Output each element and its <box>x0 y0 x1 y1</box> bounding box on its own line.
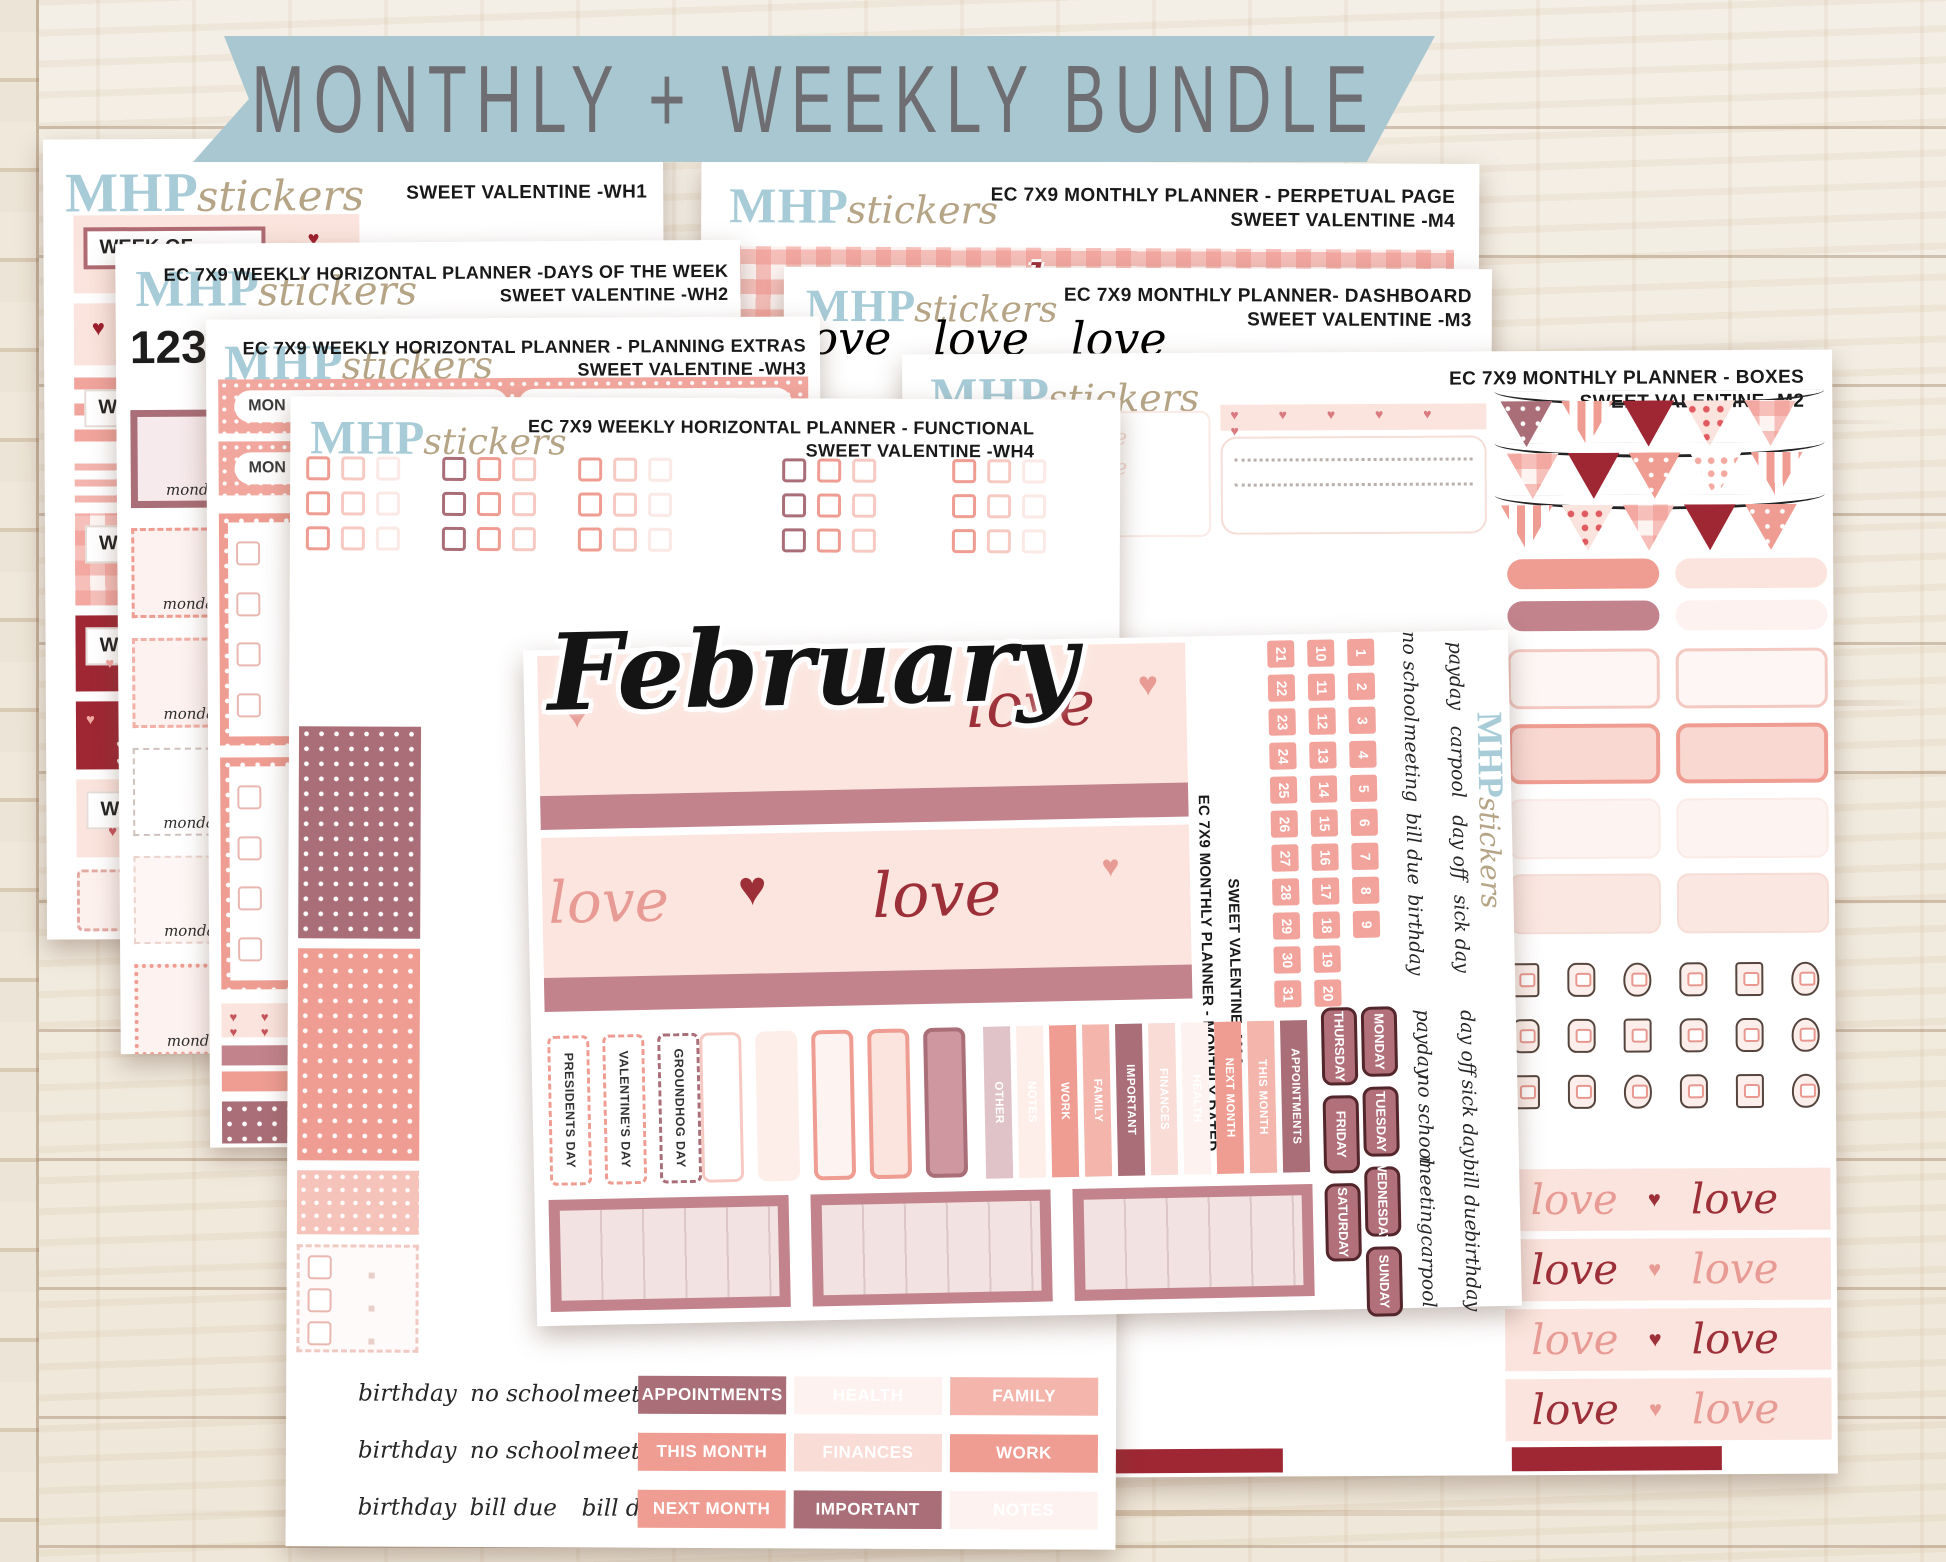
date-square: 15 <box>1311 809 1339 837</box>
note-box <box>1072 1184 1314 1301</box>
script-word-sticker: bill due <box>1450 1162 1491 1227</box>
sheet-code: SWEET VALENTINE -WH1 <box>406 180 647 205</box>
medicine-jar-icon <box>1562 1015 1602 1057</box>
gas-pump-icon <box>1673 958 1713 1000</box>
icon-sticker-grid <box>1505 958 1830 1128</box>
title-ribbon: MONTHLY + WEEKLY BUNDLE <box>193 36 1435 162</box>
quarter-box-row <box>1508 648 1828 710</box>
date-square: 29 <box>1273 912 1301 940</box>
checkbox <box>236 542 260 566</box>
note-box-row <box>549 1184 1315 1312</box>
day-pill: WEDNESDAY <box>1364 1166 1401 1237</box>
suitcase-icon <box>1674 1014 1714 1056</box>
pennant <box>1561 401 1613 447</box>
piggy-bank-icon <box>1561 959 1601 1001</box>
hearts-band: ♥ ♥ ♥ ♥ ♥ ♥ <box>1220 403 1486 430</box>
blank-box <box>755 1031 800 1182</box>
blank-box <box>1676 648 1828 709</box>
label-sticker: NOTES <box>950 1491 1098 1530</box>
date-square: 12 <box>1308 707 1336 735</box>
date-square: 22 <box>1268 674 1296 702</box>
checkbox-grid <box>782 458 876 552</box>
script-word-sticker: meeting <box>1406 1163 1447 1228</box>
label-sticker-grid: APPOINTMENTSHEALTHFAMILYTHIS MONTHFINANC… <box>638 1366 1099 1539</box>
checkbox <box>308 1288 332 1312</box>
day-pill: THURSDAY <box>1321 1007 1359 1086</box>
sheet-code: SWEET VALENTINE -M4 <box>990 207 1455 233</box>
label-strip <box>1675 558 1827 589</box>
blank-box <box>1677 873 1829 934</box>
brand-script: stickers <box>847 188 999 233</box>
label-sticker: APPOINTMENTS <box>638 1375 786 1414</box>
love-script: love <box>1691 1318 1779 1360</box>
love-band: love ♥ love <box>1505 1378 1831 1442</box>
dark-red-strip <box>1512 1446 1722 1471</box>
checkbox <box>307 1321 331 1345</box>
category-label: THIS MONTH <box>1247 1021 1277 1174</box>
sheet-title: EC 7X9 MONTHLY PLANNER - PERPETUAL PAGE … <box>990 183 1455 233</box>
script-word-sticker: meeting <box>1391 725 1433 800</box>
quarter-box-row <box>1509 873 1829 935</box>
blank-box <box>699 1032 744 1183</box>
brand-script: stickers <box>1472 797 1507 909</box>
polka-box <box>297 948 420 1161</box>
label-sticker: FINANCES <box>794 1433 942 1472</box>
wood-plank-left <box>0 0 39 1562</box>
label-sticker: FAMILY <box>950 1377 1098 1416</box>
quarter-box-row <box>1508 723 1828 785</box>
script-word-sticker: birthday <box>358 1494 470 1520</box>
script-word-sticker: birthday <box>1452 1238 1493 1303</box>
script-word-column: no schoolmeetingbill duebirthday <box>1389 639 1436 972</box>
blank-box <box>1509 873 1661 934</box>
pennant <box>1623 504 1675 550</box>
date-square: 24 <box>1269 742 1297 770</box>
heart-icon: ♥ <box>738 861 768 917</box>
calendar-icon <box>1730 1070 1770 1112</box>
script-word-sticker: sick day <box>1448 1086 1489 1151</box>
blank-box <box>1676 723 1828 784</box>
sheet-title: EC 7X9 WEEKLY HORIZONTAL PLANNER - PLANN… <box>243 334 807 382</box>
love-script: love <box>1530 1179 1618 1221</box>
script-word-column: day offsick daybill duebirthday <box>1447 1010 1493 1303</box>
script-word-sticker: carpool <box>1408 1239 1449 1304</box>
pennant <box>1507 453 1559 499</box>
mhp-logo: MHPstickers <box>729 176 998 235</box>
strip-row <box>1507 600 1827 632</box>
brand-bold: MHP <box>729 177 849 234</box>
heart-icon: ♥ <box>1648 1256 1661 1282</box>
pennant <box>1622 400 1674 446</box>
holiday-label: GROUNDHOG DAY <box>657 1033 702 1184</box>
love-script: love <box>1531 1249 1619 1291</box>
category-label: FINANCES <box>1148 1023 1178 1176</box>
label-strip <box>1675 600 1827 631</box>
pennant <box>1501 505 1553 551</box>
date-square: 1 <box>1347 639 1375 667</box>
checkbox-grid <box>578 457 672 551</box>
sheet-title-line1: EC 7X9 WEEKLY HORIZONTAL PLANNER -DAYS O… <box>164 260 729 286</box>
sheet-title: SWEET VALENTINE -WH1 <box>406 180 647 205</box>
dotted-note-box <box>1220 435 1487 534</box>
day-pill: MONDAY <box>1361 1006 1398 1077</box>
checkbox-grid <box>306 456 400 550</box>
heart-card-icon <box>1786 1070 1826 1112</box>
script-word-sticker: birthday <box>1394 897 1436 972</box>
date-square: 17 <box>1312 877 1340 905</box>
label-strip <box>1507 600 1659 631</box>
pennant <box>1568 453 1620 499</box>
pennant <box>1500 401 1552 447</box>
love-script: love <box>1531 1389 1619 1431</box>
bunting-row <box>1500 400 1796 448</box>
calculator-icon <box>1618 1014 1658 1056</box>
date-square: 13 <box>1309 741 1337 769</box>
dotted-line <box>1235 457 1473 461</box>
category-label: IMPORTANT <box>1115 1024 1145 1177</box>
day-pill: FRIDAY <box>1323 1095 1361 1174</box>
date-square: 26 <box>1271 810 1299 838</box>
date-square: 10 <box>1307 639 1335 667</box>
label-sticker: NEXT MONTH <box>638 1489 786 1528</box>
date-square: 8 <box>1352 877 1380 905</box>
date-square: 6 <box>1351 809 1379 837</box>
love-band: love ♥ love <box>1504 1168 1830 1232</box>
love-script: love <box>1691 1248 1779 1290</box>
love-banner: love ♥ love ♥ <box>541 824 1192 978</box>
script-word-sticker: day off <box>1447 1010 1488 1075</box>
laundry-basket-icon <box>1786 1014 1826 1056</box>
shopping-cart-icon <box>1674 1070 1714 1112</box>
date-column: 2122232425262728293031 <box>1267 640 1302 1007</box>
love-script: love <box>1691 1178 1779 1220</box>
pennant <box>1690 452 1742 498</box>
category-label: NOTES <box>1016 1026 1046 1179</box>
date-square: 18 <box>1313 911 1341 939</box>
date-square: 21 <box>1267 640 1295 668</box>
category-label: OTHER <box>983 1026 1013 1179</box>
blank-box <box>923 1027 968 1178</box>
pennant <box>1629 452 1681 498</box>
heart-icon: ♥ <box>1137 665 1158 704</box>
script-word-sticker: no school <box>470 1437 582 1463</box>
bundle-title: MONTHLY + WEEKLY BUNDLE <box>251 44 1376 155</box>
date-column: 1011121314151617181920 <box>1307 639 1342 1006</box>
love-band: love ♥ love <box>1505 1238 1831 1302</box>
label-sticker: HEALTH <box>794 1376 942 1415</box>
checkbox-grid <box>442 457 536 551</box>
blank-box <box>1508 723 1660 784</box>
gift-box-icon <box>1618 1070 1658 1112</box>
script-word-sticker: no school <box>1389 639 1431 714</box>
love-script: love <box>548 871 670 932</box>
strip-row <box>1507 558 1827 590</box>
checkbox <box>237 693 261 717</box>
pennant <box>1751 452 1803 498</box>
date-square: 28 <box>1272 878 1300 906</box>
blank-box <box>867 1028 912 1179</box>
date-square: 7 <box>1351 843 1379 871</box>
sheet-title-line1: EC 7X9 MONTHLY PLANNER - BOXES <box>1449 366 1804 392</box>
hearts-pattern: ♥ ♥ ♥ ♥ ♥ ♥ <box>1230 405 1486 438</box>
quarter-box-row <box>1508 798 1828 860</box>
day-pill-column: THURSDAYFRIDAYSATURDAY <box>1321 1007 1362 1262</box>
tooth-icon <box>1617 958 1657 1000</box>
heart-icon: ♥ <box>1648 1186 1661 1212</box>
day-pill: SUNDAY <box>1366 1246 1403 1317</box>
day-pill: TUESDAY <box>1362 1086 1399 1157</box>
love-script: love <box>872 862 1002 927</box>
date-square: 2 <box>1348 673 1376 701</box>
script-word-column: paydayno schoolmeetingcarpool <box>1403 1011 1449 1304</box>
sheet-title-line1: EC 7X9 MONTHLY PLANNER- DASHBOARD <box>1064 284 1472 309</box>
notebook-icon <box>1562 1071 1602 1113</box>
date-square: 20 <box>1314 979 1342 1007</box>
date-square: 31 <box>1274 980 1302 1008</box>
label-strip <box>1507 558 1659 589</box>
heart-icon: ♥ <box>1101 850 1120 884</box>
day-pill: SATURDAY <box>1324 1183 1362 1262</box>
date-square: 3 <box>1348 707 1376 735</box>
checkbox <box>308 1255 332 1279</box>
date-square: 19 <box>1313 945 1341 973</box>
script-word-sticker: birthday <box>358 1437 470 1463</box>
date-square: 23 <box>1268 708 1296 736</box>
bunting-row <box>1501 504 1797 552</box>
sheet-title-line1: EC 7X9 WEEKLY HORIZONTAL PLANNER - FUNCT… <box>528 415 1034 440</box>
date-square: 27 <box>1271 844 1299 872</box>
brand-bold: MHP <box>1470 711 1512 799</box>
date-square: 11 <box>1308 673 1336 701</box>
pennant <box>1562 505 1614 551</box>
pennant <box>1744 400 1796 446</box>
script-word-sticker: no school <box>1404 1087 1445 1152</box>
script-word-sticker: birthday <box>358 1380 470 1406</box>
sheet-code: SWEET VALENTINE -WH2 <box>164 282 729 308</box>
label-sticker: IMPORTANT <box>794 1490 942 1529</box>
label-sticker: WORK <box>950 1434 1098 1473</box>
category-label-row: OTHERNOTESWORKFAMILYIMPORTANTFINANCESHEA… <box>983 1020 1310 1179</box>
pennant <box>1745 504 1797 550</box>
blank-box <box>1676 798 1828 859</box>
stethoscope-icon <box>1729 958 1769 1000</box>
date-number: 1 <box>130 320 156 374</box>
category-label: HEALTH <box>1181 1022 1211 1175</box>
date-number: 2 <box>155 320 181 374</box>
mhp-logo-vertical: MHPstickers <box>1464 670 1520 951</box>
polka-box <box>297 1170 419 1235</box>
date-number: 3 <box>181 320 207 374</box>
dumbbell-icon <box>1785 958 1825 1000</box>
checklist-box <box>296 1244 418 1353</box>
note-box <box>549 1195 791 1312</box>
bunting-row <box>1507 452 1803 500</box>
sheet-m1a-monthly-dated: ♥ love ♥ February love ♥ love ♥ EC 7X9 M… <box>523 630 1522 1326</box>
checkbox <box>238 937 262 961</box>
quarter-box-row <box>699 1027 968 1183</box>
sheet-title: EC 7X9 WEEKLY HORIZONTAL PLANNER - FUNCT… <box>528 415 1035 462</box>
checkbox <box>237 643 261 667</box>
pennant <box>1684 504 1736 550</box>
script-word-sticker: bill due <box>1393 811 1435 886</box>
date-square: 5 <box>1350 775 1378 803</box>
checkbox <box>238 836 262 860</box>
category-label: APPOINTMENTS <box>1280 1020 1310 1173</box>
day-pill-column: MONDAYTUESDAYWEDNESDAYSUNDAY <box>1361 1006 1403 1317</box>
date-square: 9 <box>1353 911 1381 939</box>
script-word-sticker: bill due <box>470 1494 582 1520</box>
checkbox-grid <box>952 459 1046 553</box>
love-script: love <box>1692 1388 1780 1430</box>
blank-box <box>1508 798 1660 859</box>
date-square: 14 <box>1310 775 1338 803</box>
category-label: WORK <box>1049 1025 1079 1178</box>
date-square: 4 <box>1349 741 1377 769</box>
checkbox <box>236 592 260 616</box>
month-name-sticker: February <box>546 599 1079 735</box>
date-square: 30 <box>1273 946 1301 974</box>
label-sticker: THIS MONTH <box>638 1432 786 1471</box>
love-script: love <box>1531 1319 1619 1361</box>
envelope-icon <box>1730 1014 1770 1056</box>
note-box <box>810 1189 1052 1306</box>
checkbox <box>237 786 261 810</box>
holiday-label: PRESIDENTS DAY <box>547 1035 592 1186</box>
blank-box <box>1508 648 1660 709</box>
script-word-sticker: no school <box>470 1380 582 1406</box>
script-word-sticker: payday <box>1403 1011 1444 1076</box>
holiday-label: VALENTINE'S DAY <box>602 1034 647 1185</box>
pennant <box>1683 400 1735 446</box>
date-column: 123456789 <box>1347 639 1380 938</box>
love-band: love ♥ love <box>1505 1308 1831 1372</box>
blank-box <box>811 1030 856 1181</box>
dotted-line <box>1235 482 1473 486</box>
heart-icon: ♥ <box>92 315 105 341</box>
heart-icon: ♥ <box>1648 1326 1661 1352</box>
polka-box <box>298 726 421 939</box>
sheet-title-line1: EC 7X9 WEEKLY HORIZONTAL PLANNER - PLANN… <box>243 334 807 359</box>
heart-icon: ♥ <box>1649 1396 1662 1422</box>
category-label: NEXT MONTH <box>1214 1021 1244 1174</box>
category-label: FAMILY <box>1082 1024 1112 1177</box>
sheet-title: EC 7X9 WEEKLY HORIZONTAL PLANNER -DAYS O… <box>164 260 729 309</box>
sheet-title-line1: EC 7X9 MONTHLY PLANNER - PERPETUAL PAGE <box>991 183 1456 209</box>
holiday-label-row: PRESIDENTS DAYVALENTINE'S DAYGROUNDHOG D… <box>547 1033 702 1186</box>
date-square: 25 <box>1270 776 1298 804</box>
date-square: 16 <box>1311 843 1339 871</box>
checkbox <box>238 887 262 911</box>
